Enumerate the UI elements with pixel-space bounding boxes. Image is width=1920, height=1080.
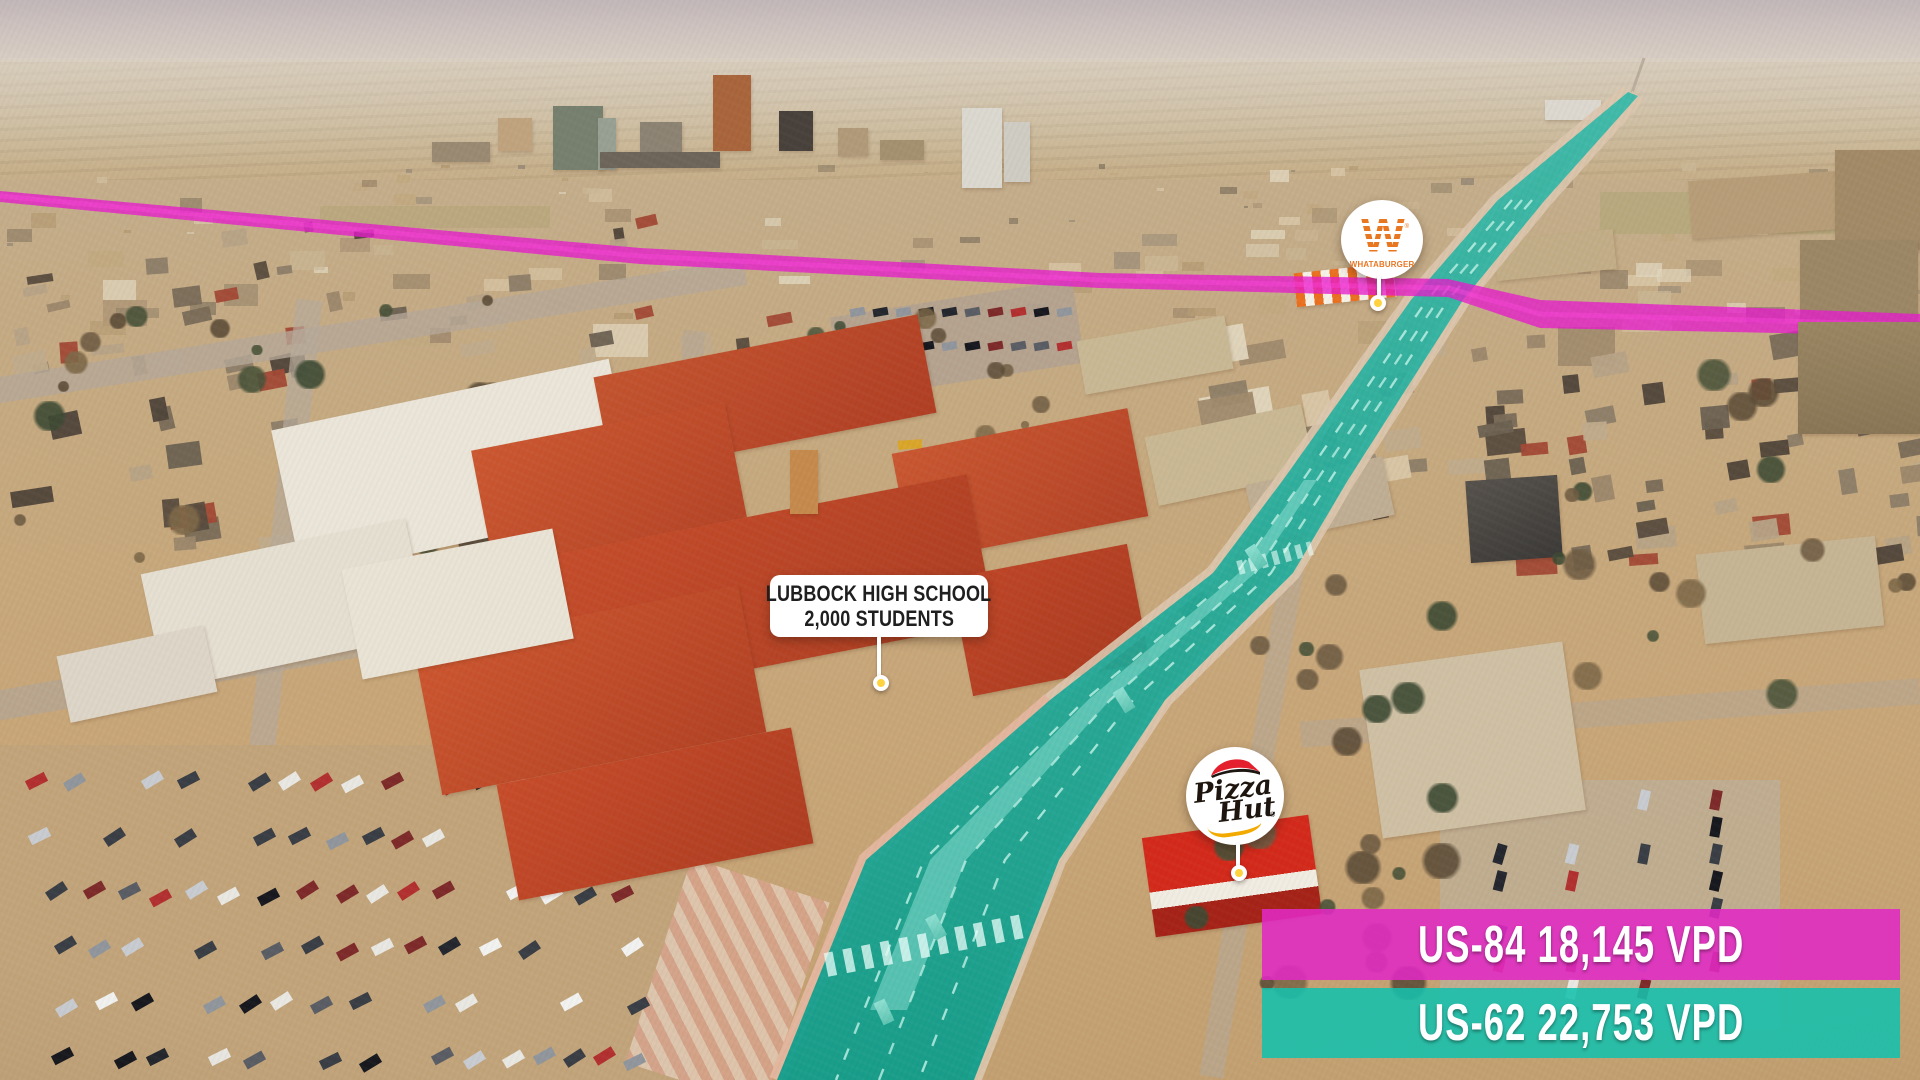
school-callout-line2: 2,000 STUDENTS [804,606,954,631]
building-block [559,192,566,194]
building-block [562,178,569,181]
tree [1798,538,1828,562]
tree [1673,579,1709,608]
house [609,238,627,249]
building-block [1251,230,1285,239]
building-block [1553,179,1572,188]
tree [235,366,269,393]
house [253,261,269,280]
building-block [1349,166,1358,169]
tree [1570,662,1605,690]
building-block [818,165,835,172]
building-block [97,177,107,183]
house [1900,461,1920,484]
house [1448,458,1486,476]
building-block [1334,261,1348,266]
house [10,486,54,508]
building-block [1312,208,1337,224]
building-block [1009,218,1018,224]
house [172,285,202,308]
building-block [614,313,633,319]
building-block [1142,234,1177,246]
field [320,206,550,228]
building-block [779,276,810,284]
tree [1358,834,1383,854]
building-block [1188,308,1216,317]
building-block [1662,234,1676,241]
tree [1391,867,1407,880]
house [1637,499,1656,512]
building-block [88,251,124,268]
tree [1754,456,1787,483]
commercial-block [1301,390,1334,427]
building-block [406,169,411,173]
tree [13,514,27,525]
house [1749,518,1780,542]
building-block [180,198,202,212]
tree [1030,396,1052,414]
building-block [290,251,325,271]
strip-mall [1076,315,1233,394]
building-block [393,274,430,290]
house [1521,442,1549,456]
tree [57,381,70,391]
tree [208,319,232,339]
tree [78,332,102,351]
building-block [31,213,56,228]
skyline-block [600,152,720,168]
skyline-block [432,142,490,162]
us62-vpd-text: US-62 22,753 VPD [1418,993,1744,1053]
registered-mark: ® [1405,224,1409,230]
tree [1359,887,1387,909]
warehouse [57,625,218,723]
school-callout: LUBBOCK HIGH SCHOOL 2,000 STUDENTS [770,575,988,637]
building-block [1651,320,1672,330]
building-block [765,218,781,227]
building-block [1746,307,1785,323]
building-block [1727,303,1746,313]
tree [250,345,263,356]
building-block [374,245,393,255]
building-block [1259,296,1286,314]
tree [1647,572,1672,592]
school-callout-stem [877,636,881,678]
house [1835,402,1855,416]
tree [31,401,69,431]
skyline-block [880,140,924,160]
house [13,326,30,345]
building-block [103,280,136,300]
building-block [1109,173,1118,175]
pizza-hut-pin-stem [1236,843,1240,867]
building-block [960,237,980,243]
house [277,265,293,275]
house [1787,433,1804,448]
tree [929,328,948,343]
building-block [397,175,410,182]
house [1569,457,1587,475]
skyline-tower [553,106,603,170]
house [1583,421,1608,440]
house [1378,371,1415,397]
building-block [1447,228,1465,236]
tree [133,552,147,563]
school-callout-line1: LUBBOCK HIGH SCHOOL [766,581,992,606]
building-block [925,172,928,173]
us84-vpd-text: US-84 18,145 VPD [1418,915,1744,975]
pavilion [1545,100,1601,120]
tree [1323,574,1350,595]
pizza-hut-pin-dot [1231,865,1247,881]
house [1838,468,1857,495]
building-block [1431,183,1453,194]
house [1769,331,1802,360]
house [1714,498,1738,515]
tree [1424,783,1461,813]
tree [1694,359,1734,391]
tree [1763,679,1801,709]
skyline-tower [779,111,813,151]
building-block [187,232,194,234]
house [1591,474,1615,502]
building-block [583,188,600,194]
house [221,229,248,248]
house [1419,341,1446,357]
house [1889,493,1910,509]
house [174,536,197,550]
registered-mark: ® [1270,812,1275,819]
building-block [1069,220,1075,222]
house [1906,404,1920,420]
big-building [1688,171,1842,239]
big-building [1835,150,1920,250]
us84-vpd-banner: US-84 18,145 VPD [1262,909,1900,980]
building-block [535,253,549,260]
building-block [416,197,432,204]
skyline-tower [713,75,751,151]
tree [1176,591,1213,621]
house [1526,334,1545,348]
building-block [1461,178,1474,185]
building-block [1182,262,1203,272]
building-block [529,268,562,280]
building-block [518,165,525,169]
tree [1182,906,1210,929]
building-block [1636,263,1662,277]
whataburger-wordmark: WHATABURGER [1350,259,1415,269]
tree [985,362,1006,379]
building-block [343,292,356,301]
school-callout-dot [873,675,889,691]
house [509,274,532,292]
tree [1563,488,1581,502]
building-block [194,217,213,224]
building-block [340,238,370,253]
house [1898,438,1920,459]
big-building [1696,536,1884,644]
building-block [1291,170,1295,172]
building-block [484,279,508,290]
building-block [1600,270,1629,289]
house [129,464,154,482]
building-block [362,180,378,188]
building-block [1157,188,1163,192]
skyline-tower [640,122,682,154]
whataburger-pin-dot [1370,295,1386,311]
big-building [1359,642,1586,839]
building-block [913,238,933,248]
tree [378,304,394,317]
school-tower [790,450,818,514]
house [1562,374,1580,394]
skyline-tower [498,118,532,151]
house [149,397,169,423]
tree [1424,601,1461,630]
house [303,222,314,233]
skyline-tower [1004,122,1030,182]
tree [1294,669,1321,691]
tree [1646,630,1661,642]
house [46,299,70,312]
tree [1560,549,1599,580]
tree [1359,695,1395,723]
tree [1745,378,1782,408]
building-block [441,165,449,168]
tree [1248,636,1272,655]
building-block [1358,321,1408,344]
building-block [1286,248,1306,261]
big-building [1800,240,1918,324]
house [326,291,342,312]
house [634,305,655,320]
house [1497,389,1523,404]
building-block [1246,244,1279,257]
us62-vpd-banner: US-62 22,753 VPD [1262,988,1900,1058]
tree [1419,843,1464,879]
church [1465,475,1562,563]
tree [481,295,494,305]
tree [1297,642,1315,656]
house [635,214,658,229]
building-block [901,260,926,271]
house [1916,514,1920,536]
house [1759,440,1790,458]
building-block [1099,164,1105,168]
building-block [283,216,296,221]
building-block [605,209,631,223]
building-block [124,230,130,233]
house [1383,427,1423,452]
whataburger-pin: W WHATABURGER ® [1341,200,1423,279]
house [1645,479,1664,493]
building-block [394,194,416,205]
building-block [1049,263,1081,279]
house [460,339,496,357]
skyline-tower [838,128,868,156]
house [1471,346,1488,361]
building-block [1114,252,1140,268]
aerial-photo-scene: W WHATABURGER ® Pizza Hut ® LUBBOCK HIGH… [0,0,1920,1080]
tree [1313,644,1346,670]
skyline-tower [962,108,1002,188]
house [1726,460,1750,481]
house [766,312,793,328]
tree [1342,851,1384,884]
tree [1329,727,1366,756]
house [1642,381,1666,405]
building-block [1145,256,1178,271]
tree [1887,578,1905,592]
house [353,229,374,239]
building-block [1253,203,1262,208]
house [166,440,203,469]
tree [123,306,149,327]
tree [292,360,329,389]
house [22,284,48,298]
building-block [1220,187,1237,194]
whataburger-logo-icon: W [1361,212,1402,258]
pizza-hut-pin: Pizza Hut ® [1186,747,1284,845]
building-block [762,240,798,249]
house [146,257,169,274]
building-block [1244,206,1249,207]
building-block [7,243,13,246]
building-block [1638,291,1671,312]
building-block [1136,271,1162,283]
house [1409,459,1428,473]
building-block [7,229,32,242]
house [26,273,53,285]
building-block [574,245,587,250]
building-block [1279,217,1300,225]
tree [62,351,90,374]
building-block [1331,168,1345,176]
building-block [1243,191,1258,199]
tree [165,505,203,535]
building-block [1295,230,1318,241]
building-block [1682,163,1697,171]
whataburger-monogram: W [1361,212,1402,259]
building-block [1270,170,1290,182]
